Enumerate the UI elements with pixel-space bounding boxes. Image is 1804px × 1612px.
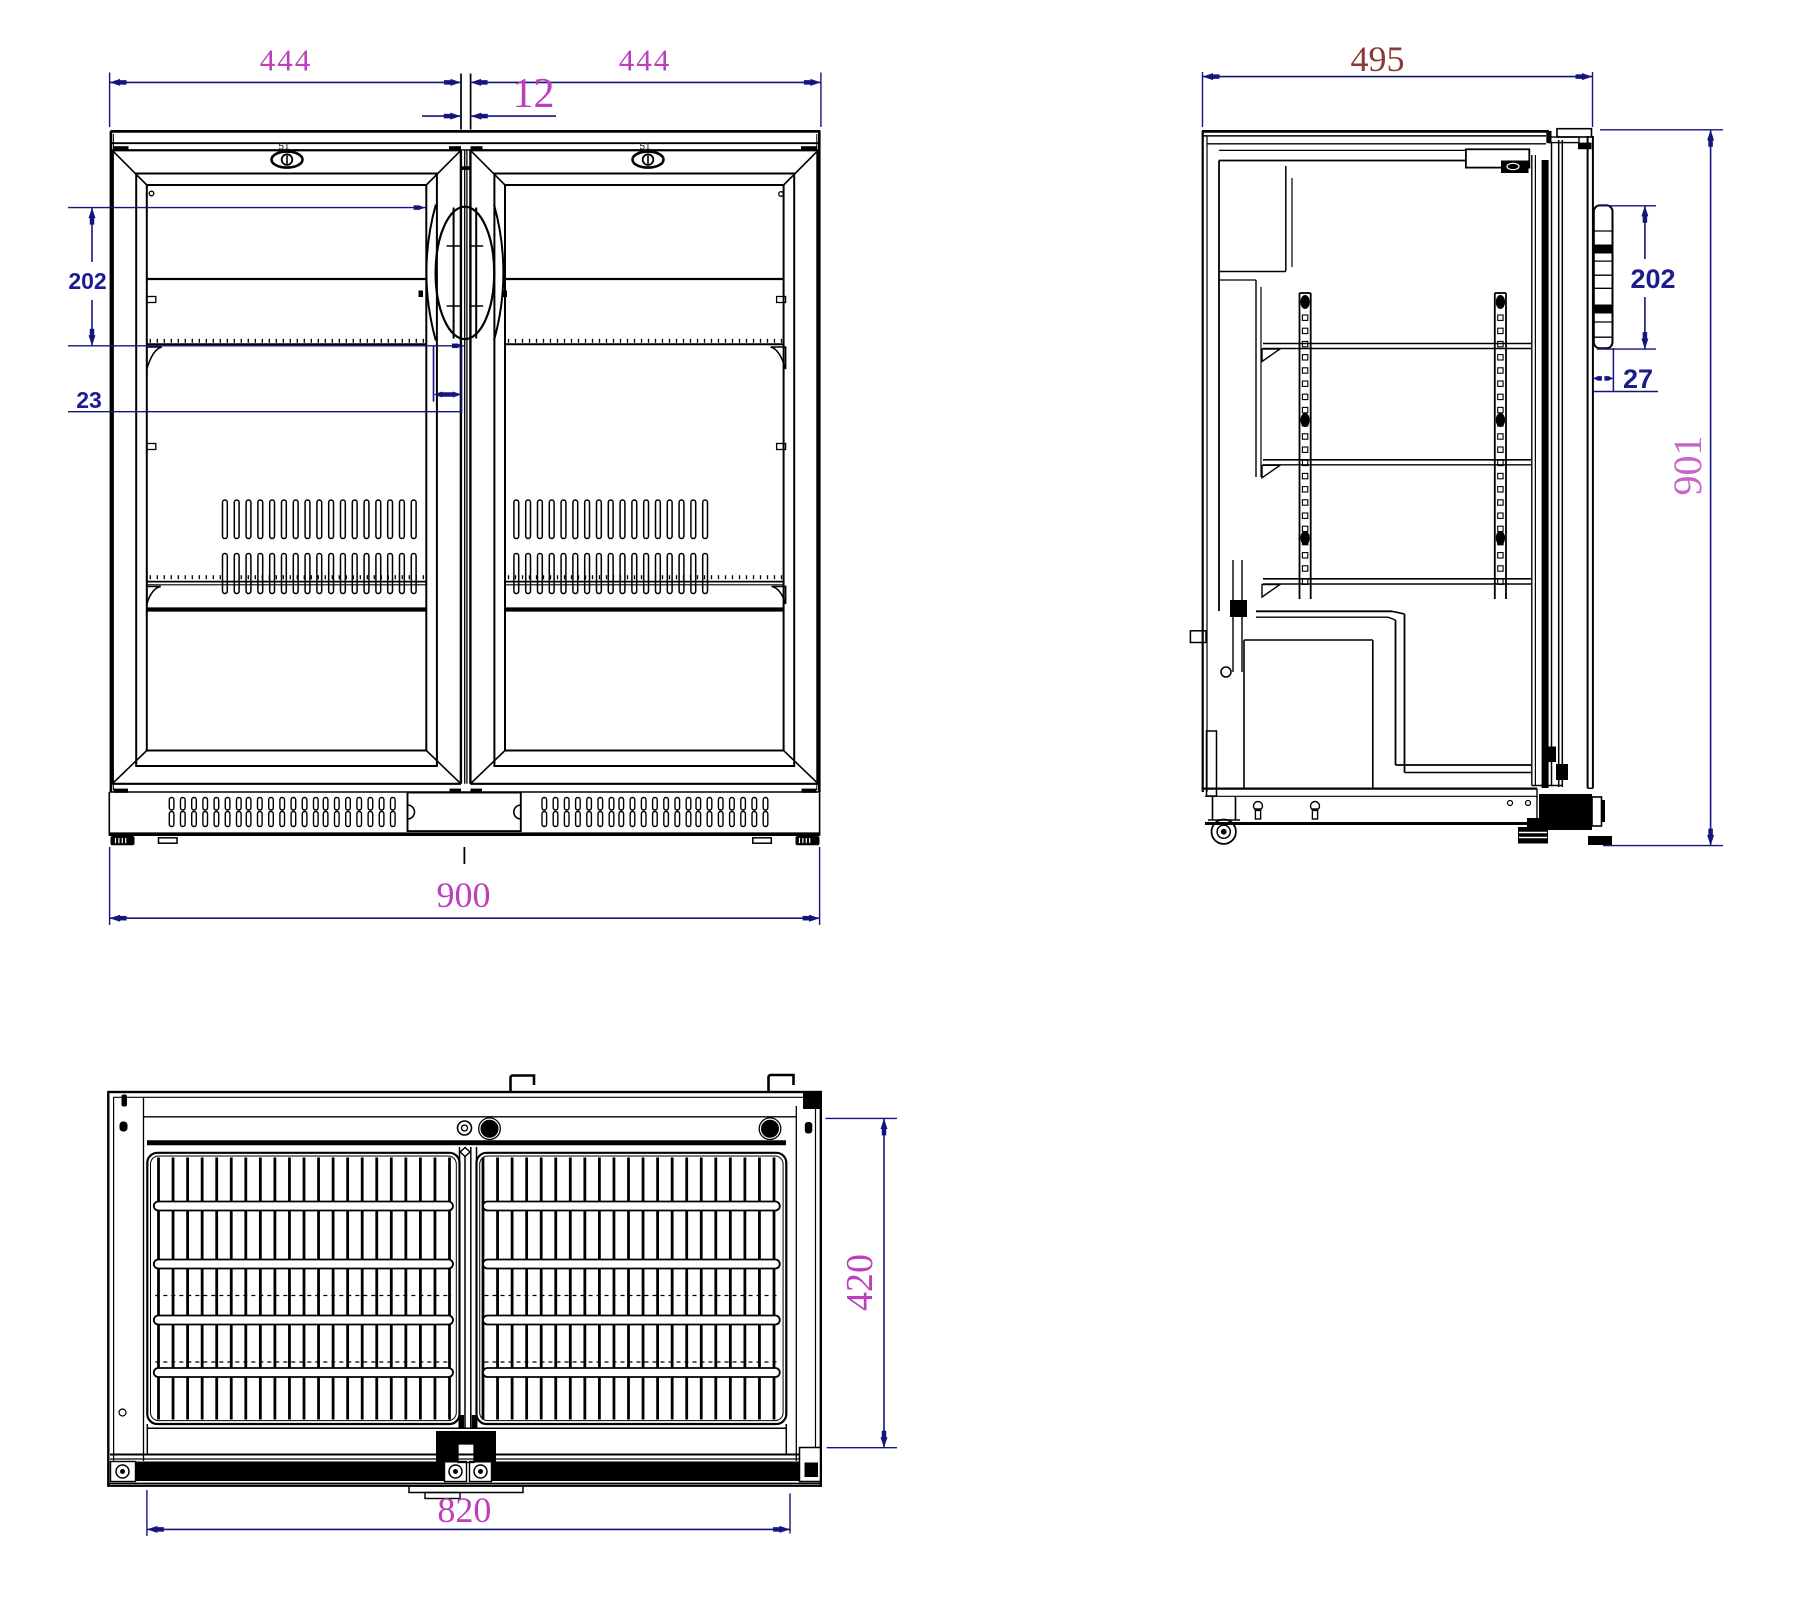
svg-text:901: 901 — [1665, 436, 1710, 496]
svg-text:12: 12 — [513, 71, 555, 117]
svg-text:820: 820 — [437, 1490, 491, 1530]
svg-text:27: 27 — [1623, 364, 1653, 394]
svg-text:900: 900 — [437, 875, 491, 915]
svg-text:23: 23 — [76, 387, 102, 413]
svg-text:202: 202 — [1630, 264, 1675, 294]
svg-text:444: 444 — [260, 43, 313, 78]
svg-text:202: 202 — [68, 268, 106, 294]
svg-text:444: 444 — [619, 43, 672, 78]
svg-text:495: 495 — [1351, 39, 1405, 79]
svg-text:420: 420 — [839, 1254, 881, 1311]
